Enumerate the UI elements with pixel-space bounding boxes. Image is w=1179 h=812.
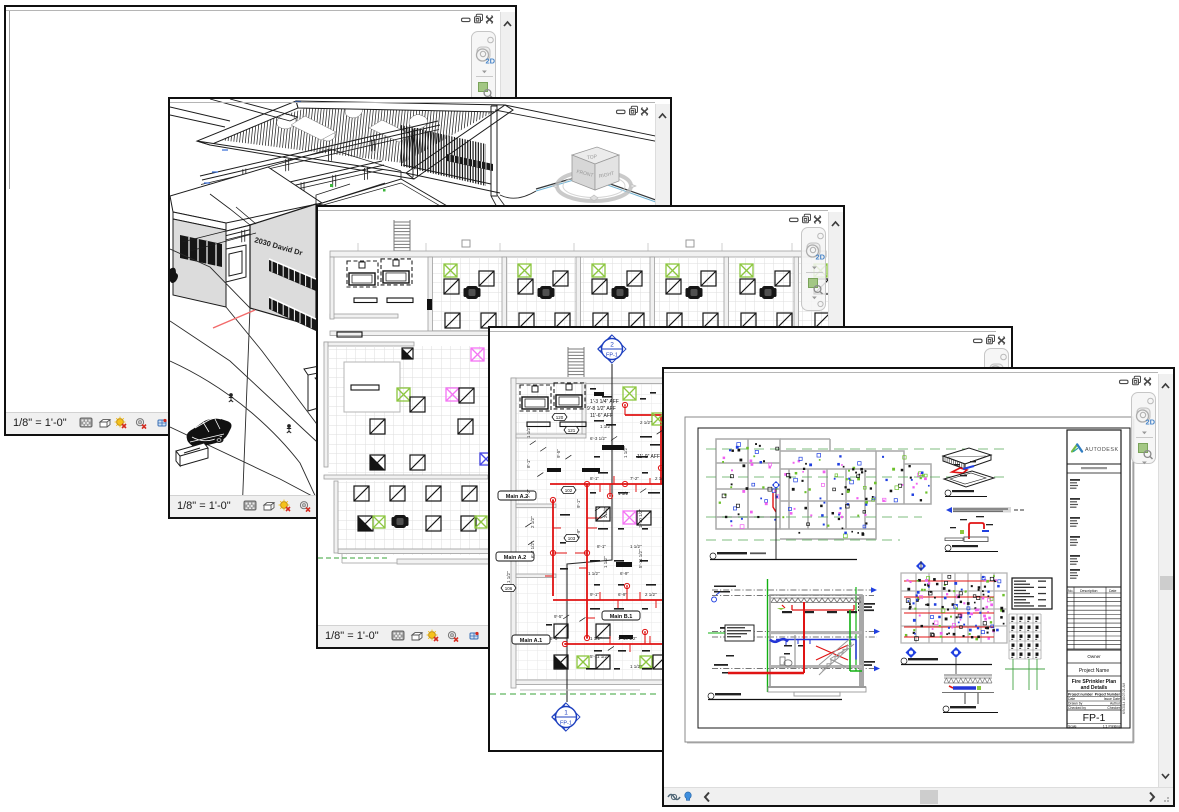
svg-text:103: 103 — [568, 536, 576, 541]
svg-text:1 1/2": 1 1/2" — [630, 664, 642, 669]
svg-text:2 1/2": 2 1/2" — [530, 516, 535, 528]
svg-text:Main B.1: Main B.1 — [610, 614, 633, 620]
svg-text:Main A.2: Main A.2 — [506, 494, 528, 500]
svg-text:Issue Date: Issue Date — [1104, 697, 1120, 701]
svg-text:1 1/2": 1 1/2" — [590, 636, 602, 641]
svg-text:1 1/2": 1 1/2" — [630, 544, 642, 549]
svg-text:Checked by: Checked by — [1068, 706, 1086, 710]
svg-text:5'-11 1/2": 5'-11 1/2" — [590, 654, 609, 659]
svg-text:6/3/2014 10:07:21 AM: 6/3/2014 10:07:21 AM — [1122, 682, 1126, 714]
svg-text:6'-3 1/2": 6'-3 1/2" — [590, 436, 607, 441]
svg-text:5'-11 1/2": 5'-11 1/2" — [638, 549, 643, 568]
svg-text:No.: No. — [1068, 589, 1073, 593]
svg-text:1 1/2": 1 1/2" — [526, 426, 531, 438]
svg-text:2: 2 — [610, 342, 614, 349]
svg-text:120: 120 — [556, 415, 564, 420]
svg-text:Scale: Scale — [1068, 725, 1077, 729]
svg-text:1'-3 1/4" AFF: 1'-3 1/4" AFF — [590, 399, 619, 405]
svg-text:9'-1": 9'-1" — [590, 592, 599, 597]
svg-text:121: 121 — [568, 428, 576, 433]
svg-text:9'-5": 9'-5" — [554, 614, 563, 619]
svg-text:FP-1: FP-1 — [560, 721, 572, 727]
svg-text:Date: Date — [1109, 589, 1116, 593]
svg-text:1'-10 1/2": 1'-10 1/2" — [618, 636, 637, 641]
svg-text:11'-6" AFF: 11'-6" AFF — [590, 413, 613, 419]
svg-text:1:1 Printing: 1:1 Printing — [1103, 725, 1120, 729]
svg-text:Checker: Checker — [1107, 706, 1120, 710]
svg-text:2D: 2D — [486, 57, 496, 66]
svg-text:8'-1": 8'-1" — [590, 476, 599, 481]
svg-text:Date: Date — [1068, 697, 1075, 701]
svg-text:1 1/2": 1 1/2" — [588, 571, 600, 576]
svg-text:Author: Author — [1110, 702, 1121, 706]
svg-text:9'-8 1/2" AFF: 9'-8 1/2" AFF — [587, 406, 616, 412]
svg-text:8'-1": 8'-1" — [597, 544, 606, 549]
svg-text:Main A.2: Main A.2 — [504, 555, 526, 561]
svg-text:2D: 2D — [1146, 418, 1156, 427]
svg-text:1 1/2": 1 1/2" — [603, 556, 608, 568]
svg-text:Project Number: Project Number — [1095, 693, 1121, 697]
svg-text:1 1/2": 1 1/2" — [623, 446, 628, 458]
svg-text:6'-3 1/2": 6'-3 1/2" — [530, 541, 535, 558]
svg-text:6'-9": 6'-9" — [620, 571, 629, 576]
svg-text:AUTODESK: AUTODESK — [1085, 447, 1119, 453]
svg-text:9'-5": 9'-5" — [556, 449, 561, 458]
svg-text:2D: 2D — [816, 253, 826, 262]
svg-text:Project number: Project number — [1068, 693, 1094, 697]
svg-text:7'-2": 7'-2" — [526, 489, 531, 498]
svg-text:Drawn by: Drawn by — [1068, 702, 1083, 706]
svg-text:6'-9": 6'-9" — [618, 592, 627, 597]
svg-text:6'-9": 6'-9" — [576, 529, 581, 538]
svg-text:1 1/2": 1 1/2" — [506, 571, 511, 583]
svg-text:Project Name: Project Name — [1079, 668, 1110, 674]
svg-text:102: 102 — [565, 488, 573, 493]
svg-text:1'-10 1/2": 1'-10 1/2" — [638, 509, 643, 528]
svg-text:Description: Description — [1080, 589, 1098, 593]
svg-text:2 1/2": 2 1/2" — [640, 420, 652, 425]
svg-text:8'-1": 8'-1" — [526, 459, 531, 468]
svg-text:FP-1: FP-1 — [606, 353, 618, 359]
svg-text:106: 106 — [505, 586, 513, 591]
svg-text:and Details: and Details — [1081, 685, 1108, 691]
svg-text:Owner: Owner — [1087, 654, 1101, 659]
svg-text:7'-2": 7'-2" — [630, 476, 639, 481]
svg-text:9'-5": 9'-5" — [550, 636, 559, 641]
svg-text:2 1/2": 2 1/2" — [645, 592, 657, 597]
svg-text:FP-1: FP-1 — [1083, 712, 1106, 724]
svg-text:Main A.1: Main A.1 — [520, 638, 542, 644]
svg-text:9'-1": 9'-1" — [576, 499, 581, 508]
svg-text:1: 1 — [564, 710, 568, 717]
